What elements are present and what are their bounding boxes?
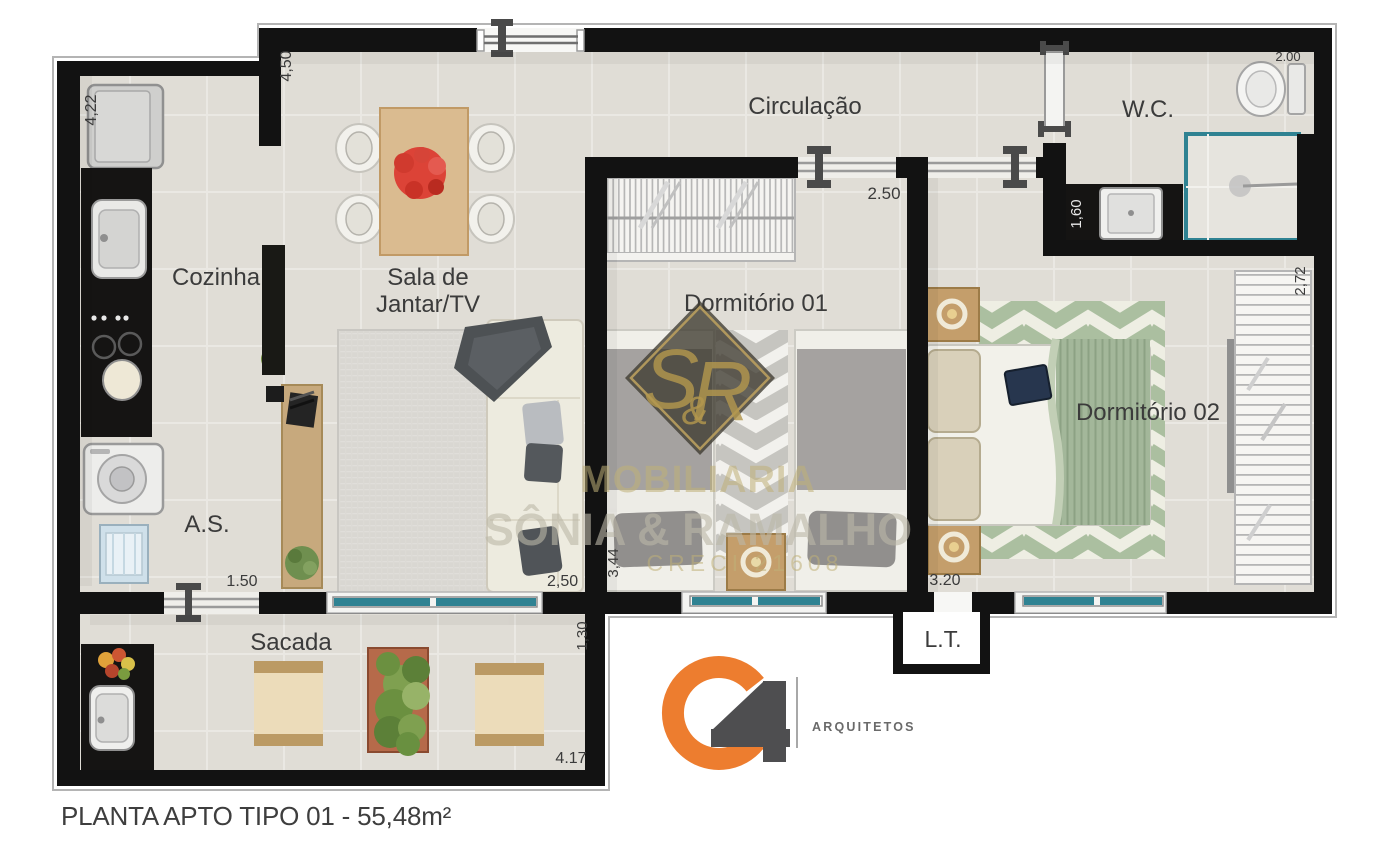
svg-text:2.50: 2.50 <box>867 184 900 203</box>
svg-text:MOBILIARIA: MOBILIARIA <box>580 459 816 501</box>
svg-text:ARQUITETOS: ARQUITETOS <box>812 720 916 734</box>
svg-text:2,50: 2,50 <box>547 573 578 590</box>
svg-text:Sala de: Sala de <box>387 264 468 291</box>
svg-text:Dormitório 02: Dormitório 02 <box>1076 399 1220 426</box>
svg-text:Sacada: Sacada <box>250 629 332 656</box>
svg-text:1.50: 1.50 <box>226 573 257 590</box>
svg-text:L.T.: L.T. <box>924 626 961 652</box>
svg-text:Cozinha: Cozinha <box>172 264 261 291</box>
svg-text:SÔNIA & RAMALHO: SÔNIA & RAMALHO <box>484 504 912 555</box>
svg-text:A.S.: A.S. <box>184 511 229 538</box>
svg-text:1,60: 1,60 <box>1068 199 1085 228</box>
svg-text:CRECI 21608: CRECI 21608 <box>647 550 844 576</box>
svg-text:R: R <box>692 344 753 438</box>
svg-text:4.17: 4.17 <box>555 750 586 767</box>
svg-text:Jantar/TV: Jantar/TV <box>376 291 480 318</box>
svg-text:W.C.: W.C. <box>1122 96 1174 123</box>
svg-text:PLANTA APTO TIPO 01 - 55,48m²: PLANTA APTO TIPO 01 - 55,48m² <box>61 801 452 831</box>
svg-text:Circulação: Circulação <box>748 93 861 120</box>
svg-text:2,72: 2,72 <box>1292 266 1309 295</box>
svg-text:1,30: 1,30 <box>574 621 591 650</box>
